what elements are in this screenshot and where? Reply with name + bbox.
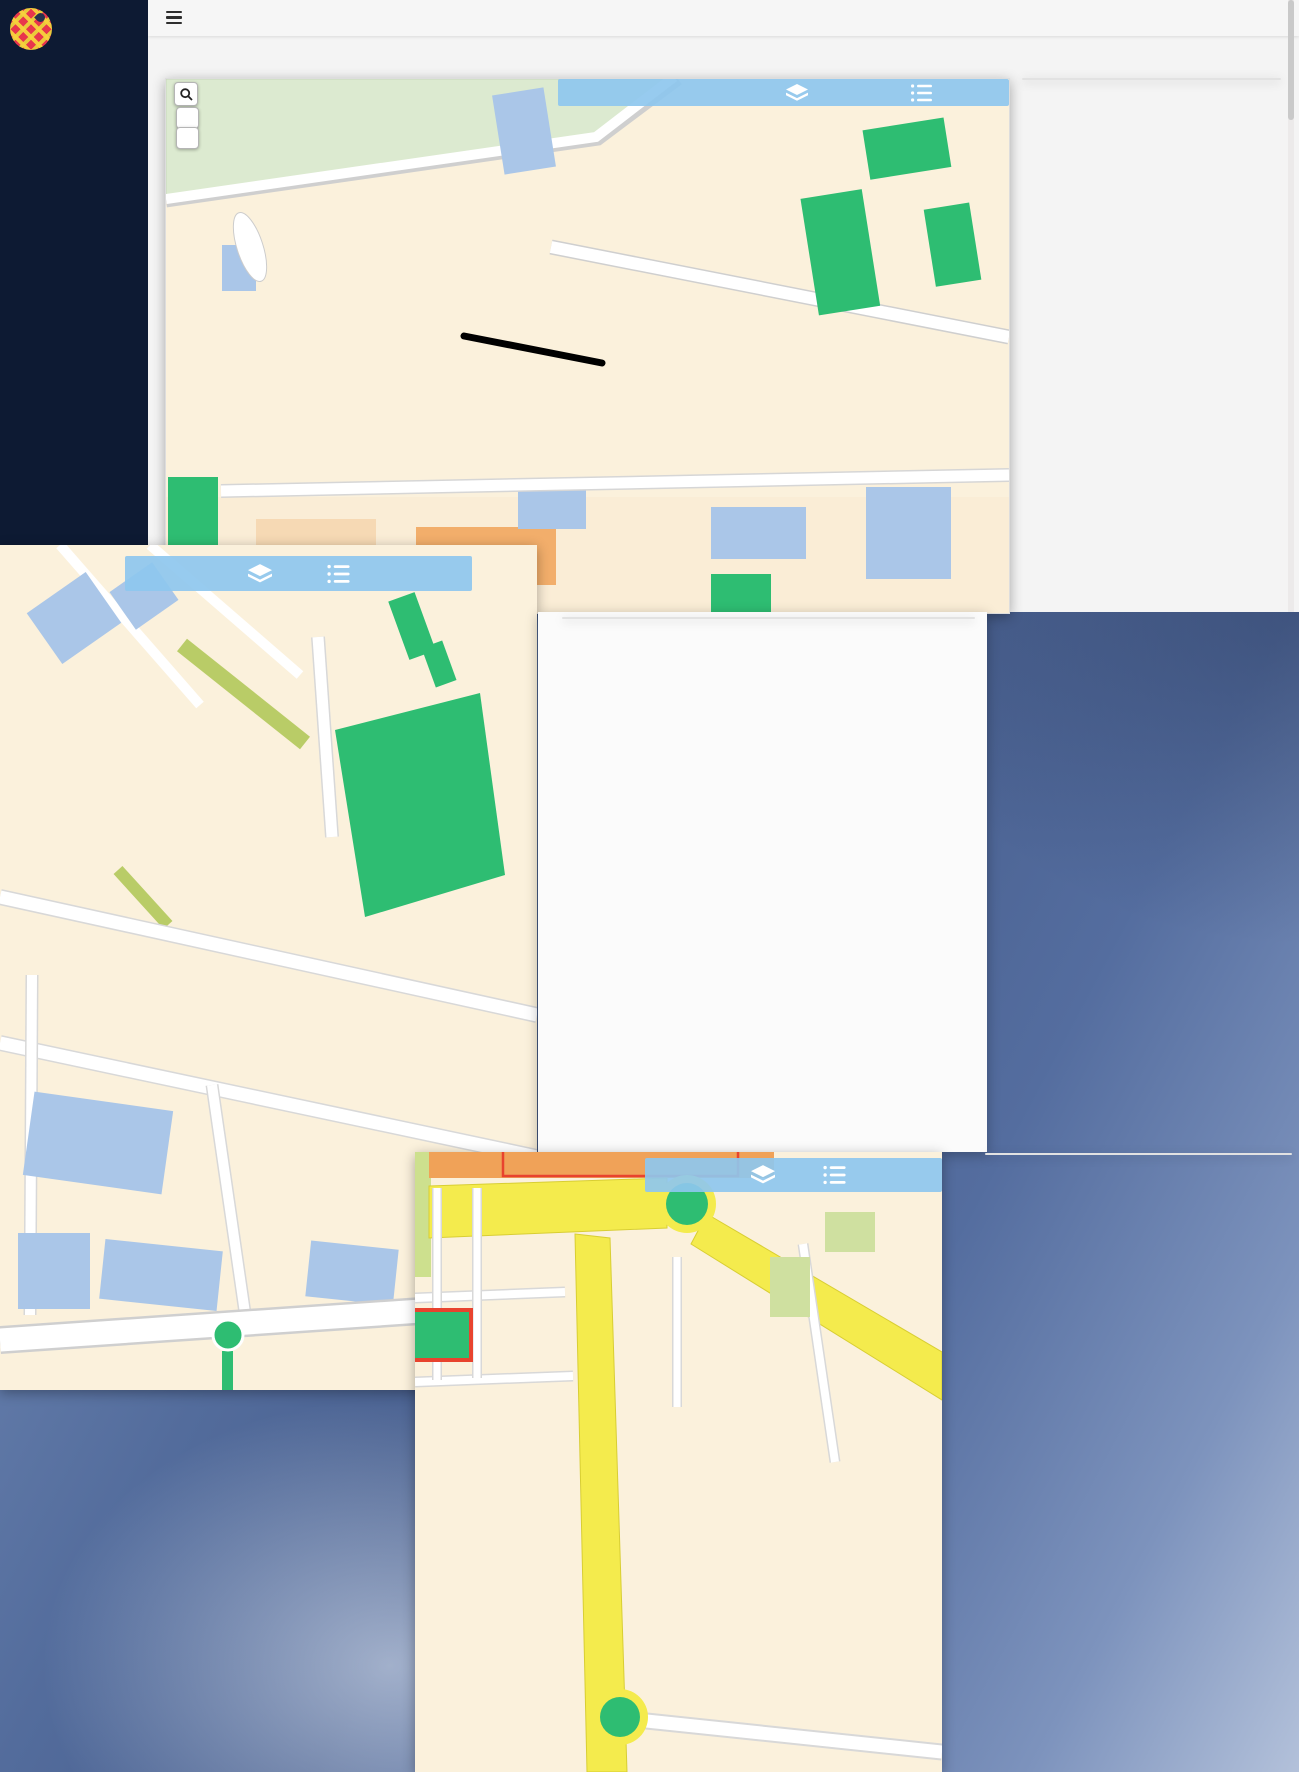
map1-toolbar <box>558 79 1009 106</box>
list-icon[interactable] <box>327 564 350 583</box>
zoom-in-button[interactable] <box>176 107 199 129</box>
layers-icon[interactable] <box>248 564 272 584</box>
logo-map-icon <box>10 8 52 50</box>
layers-icon[interactable] <box>786 84 808 102</box>
map-screenshot-1[interactable] <box>165 78 1010 614</box>
list-icon[interactable] <box>823 1166 846 1185</box>
hamburger-icon[interactable] <box>166 11 182 24</box>
question-panel-4 <box>985 1153 1292 1155</box>
app-screenshot <box>0 0 1299 612</box>
top-bar <box>148 0 1299 36</box>
list-icon[interactable] <box>911 84 932 102</box>
layers-icon[interactable] <box>751 1165 775 1185</box>
scrollbar[interactable] <box>1288 0 1294 612</box>
question-panel-1 <box>1022 78 1281 80</box>
map2-toolbar <box>125 556 472 591</box>
map-screenshot-3[interactable] <box>415 1152 942 1772</box>
sidebar <box>0 0 148 612</box>
map3-toolbar <box>645 1158 942 1192</box>
app-logo <box>0 0 148 50</box>
question-2-screenshot <box>538 612 987 1152</box>
zoom-out-button[interactable] <box>176 127 199 149</box>
question-panel-2 <box>562 617 975 619</box>
search-icon[interactable] <box>174 82 198 106</box>
